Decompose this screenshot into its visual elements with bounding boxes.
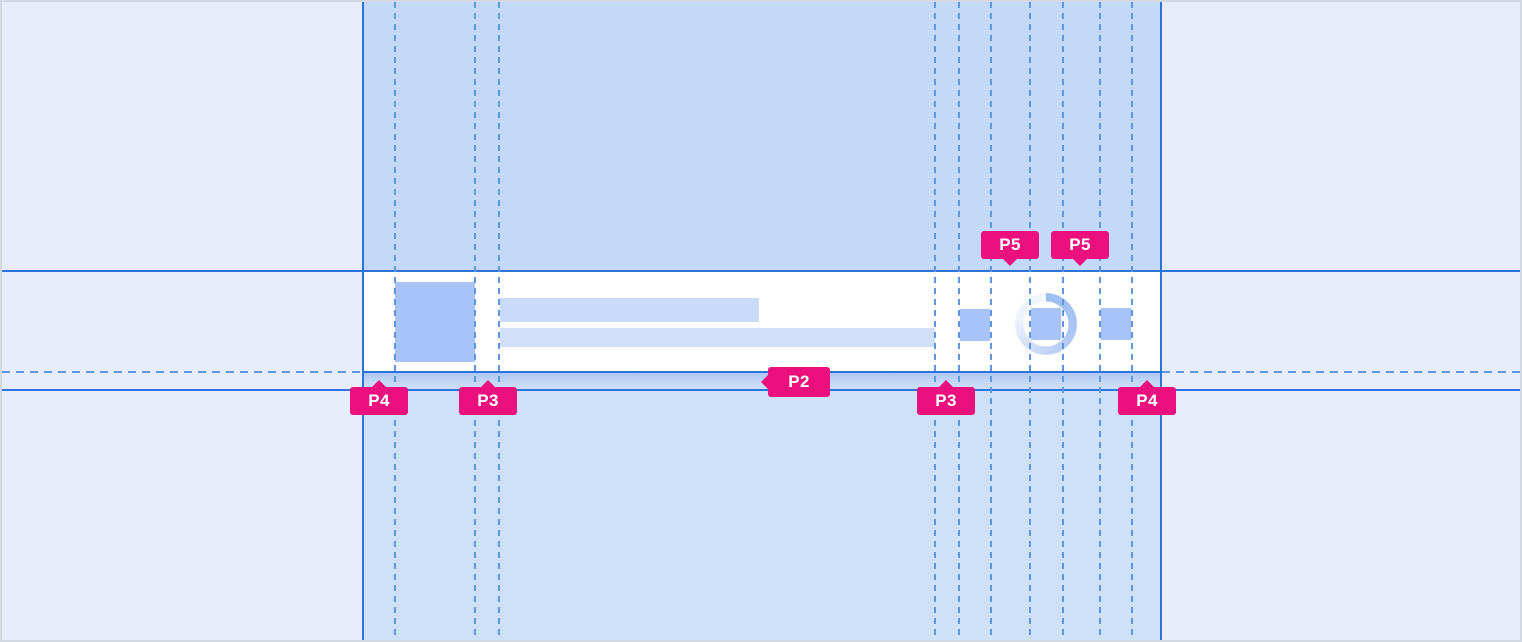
section-bottom-line xyxy=(2,389,1522,391)
baseline-dashed-guide-left xyxy=(2,371,362,373)
title-text-placeholder xyxy=(500,298,759,322)
guide-text-left xyxy=(498,2,500,642)
spacing-spec-canvas: P4 P3 P2 P3 P4 P5 P5 xyxy=(0,0,1522,642)
column-edge-line-right xyxy=(1160,2,1162,642)
guide-action2-left xyxy=(1029,2,1031,642)
guide-text-right xyxy=(934,2,936,642)
spacing-label-p4-right: P4 xyxy=(1118,387,1176,415)
spacing-label-p3-right: P3 xyxy=(917,387,975,415)
avatar-placeholder xyxy=(395,282,475,362)
spacing-label-p5-left: P5 xyxy=(981,231,1039,259)
column-edge-line-left xyxy=(362,2,364,642)
column-band-bottom xyxy=(362,390,1162,642)
guide-action2-right xyxy=(1062,2,1064,642)
guide-action3-left xyxy=(1099,2,1101,642)
row-bottom-line xyxy=(362,371,1162,373)
spacing-label-p5-right: P5 xyxy=(1051,231,1109,259)
guide-avatar-left xyxy=(394,2,396,642)
spacing-label-p2: P2 xyxy=(768,367,830,397)
subtitle-text-placeholder xyxy=(500,328,935,347)
spacing-label-p4-left: P4 xyxy=(350,387,408,415)
guide-avatar-right xyxy=(474,2,476,642)
guide-action1-left xyxy=(958,2,960,642)
spinner-icon xyxy=(1015,293,1077,355)
action-icon-placeholder-3 xyxy=(1101,308,1131,340)
guide-action3-right xyxy=(1131,2,1133,642)
action-icon-placeholder-1 xyxy=(960,309,990,341)
spacing-label-p3-left: P3 xyxy=(459,387,517,415)
guide-action1-right xyxy=(990,2,992,642)
baseline-dashed-guide-right xyxy=(1162,371,1522,373)
row-top-line xyxy=(2,270,1522,272)
column-band-top xyxy=(362,2,1162,271)
